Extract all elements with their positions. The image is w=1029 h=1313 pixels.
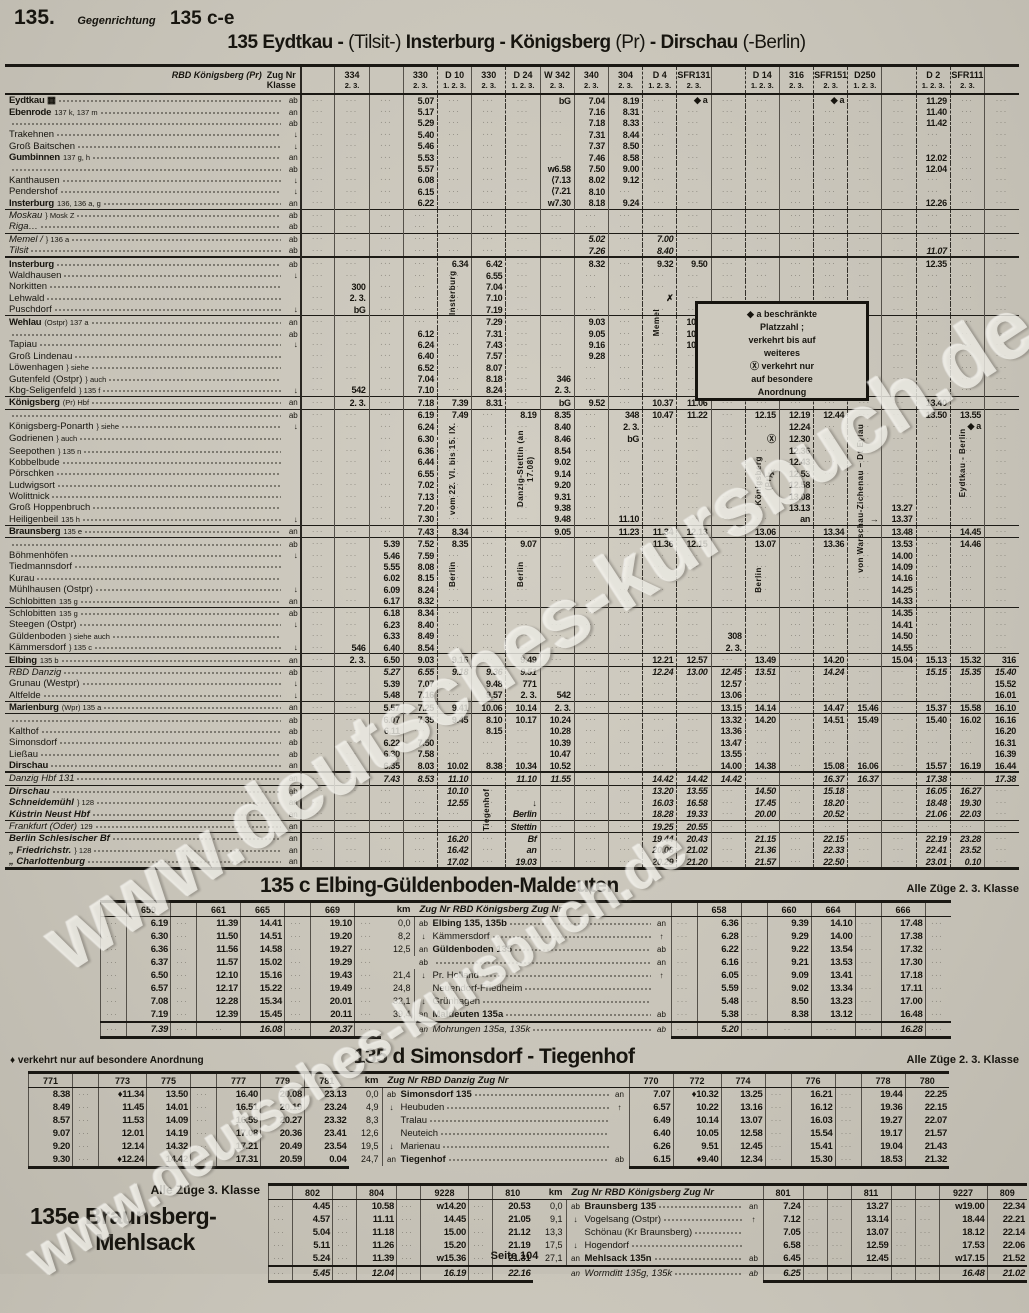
time-cell: 7.13 <box>403 491 437 502</box>
time-cell: 6.42 <box>472 257 506 269</box>
route-title-segment: Insterburg - Königsberg <box>406 32 611 53</box>
time-cell: 15.22 <box>241 982 285 995</box>
branch-time-table: 658660664666···6.36···9.3914.10···17.48·… <box>671 900 952 1039</box>
time-cell: 17.45 <box>745 797 779 808</box>
time-cell: 19.33 <box>677 808 711 820</box>
empty-cell: ··· <box>677 480 711 491</box>
time-cell: 7.04 <box>403 373 437 384</box>
station-name: Grünhagen <box>433 995 481 1008</box>
empty-cell: ··· <box>403 293 437 304</box>
time-cell: 14.00 <box>882 550 916 561</box>
empty-cell: ··· <box>506 642 540 654</box>
station-name: Güldenboden 135 <box>433 943 513 956</box>
empty-cell: ··· <box>916 175 950 186</box>
empty-cell: ··· <box>677 595 711 607</box>
empty-cell: ··· <box>574 584 608 595</box>
ab-an-marker: an <box>415 1023 433 1036</box>
station-name: Schlobitten <box>9 596 56 607</box>
empty-cell: ··· <box>950 106 984 117</box>
empty-cell: ··· <box>472 118 506 129</box>
empty-cell: ··· <box>472 526 506 538</box>
dot-leader <box>11 164 281 172</box>
empty-cell: ··· <box>915 1226 939 1239</box>
branch-row: ···5.04···11.18···15.00···21.12 <box>269 1226 533 1239</box>
time-cell: 7.12 <box>763 1213 803 1226</box>
station-row: Tiedmannsdorf······5.558.08·············… <box>5 561 1019 572</box>
time-cell: 10.14 <box>506 701 540 713</box>
time-cell: 2. 3. <box>711 642 745 654</box>
empty-cell: ··· <box>438 141 472 152</box>
time-cell: 6.37 <box>127 956 171 969</box>
branch-row: ···5.45···12.04···16.19···22.16 <box>269 1266 533 1282</box>
time-cell: 8.15 <box>472 726 506 737</box>
empty-cell: ··· <box>438 245 472 257</box>
empty-cell: ··· <box>643 457 677 468</box>
empty-cell: ··· <box>369 445 403 456</box>
empty-cell: ··· <box>403 820 437 832</box>
empty-cell: ··· <box>711 152 745 163</box>
empty-cell: ··· <box>745 502 779 513</box>
station-note: 136, 136 a, g <box>57 199 101 208</box>
empty-cell: ··· <box>882 270 916 281</box>
section-135e-title: 135e Braunsberg- Mehlsack <box>30 1203 260 1255</box>
train-number-header: 661 <box>197 902 241 917</box>
branch-row: 6.4010.0512.58···15.54···19.1721.57 <box>629 1127 949 1140</box>
empty-cell: ··· <box>985 257 1020 269</box>
empty-cell: ··· <box>335 221 369 233</box>
empty-cell: ··· <box>506 129 540 140</box>
station-note: } Mosk Z <box>45 211 74 220</box>
empty-cell: ··· <box>438 198 472 210</box>
time-cell: ✗ <box>745 468 779 479</box>
time-cell: 9.28 <box>574 351 608 362</box>
empty-cell: ··· <box>741 943 767 956</box>
time-cell: ◆ a <box>950 421 984 432</box>
ab-an-marker: an <box>283 656 300 665</box>
station-cell: Danzig Hbf 131an <box>5 772 301 785</box>
train-number-header: 777 <box>217 1073 261 1088</box>
branch-station-row: 12,6Neuteich <box>349 1127 629 1140</box>
time-cell: 11.34 <box>643 526 677 538</box>
station-cell: „ Friedrichstr.} 128an <box>5 845 301 856</box>
branch-mid-header: kmZug Nr RBD Danzig Zug Nr <box>349 1071 629 1088</box>
empty-cell: ··· <box>438 94 472 106</box>
empty-cell: ··· <box>779 737 813 748</box>
ab-an-marker: an <box>653 917 671 930</box>
empty-cell: ··· <box>950 468 984 479</box>
station-cell: Grunau (Westpr)↓ <box>5 678 301 689</box>
time-cell: 16.03 <box>791 1114 835 1127</box>
empty-cell: ··· <box>882 726 916 737</box>
empty-cell: ··· <box>882 678 916 689</box>
empty-cell: ··· <box>848 468 882 479</box>
time-cell: 12.43 <box>779 457 813 468</box>
empty-cell: ··· <box>779 257 813 269</box>
station-row: Berlin Schlesischer Bfan············16.2… <box>5 833 1019 845</box>
empty-cell: ··· <box>814 631 848 642</box>
empty-cell: ··· <box>335 468 369 479</box>
empty-cell: ··· <box>779 748 813 759</box>
gegenrichtung-label: Gegenrichtung <box>77 15 155 27</box>
empty-cell: ··· <box>848 748 882 759</box>
time-cell: 17.48 <box>881 917 925 931</box>
station-cell: Norkitten <box>5 281 301 292</box>
empty-cell: ··· <box>335 163 369 174</box>
station-row: RBD Danzigab······5.276.559.189.369.51··… <box>5 666 1019 678</box>
empty-cell: ··· <box>916 690 950 702</box>
time-cell: 6.24 <box>403 421 437 432</box>
empty-cell: ··· <box>745 457 779 468</box>
station-name: Tilsit <box>9 245 28 256</box>
empty-cell: ··· <box>301 666 335 678</box>
time-cell: 6.40 <box>403 351 437 362</box>
empty-cell: ··· <box>540 304 574 316</box>
time-cell: 16.03 <box>643 797 677 808</box>
empty-cell: ··· <box>101 943 127 956</box>
time-cell: 8.31 <box>608 106 642 117</box>
time-cell: 16.39 <box>985 748 1020 759</box>
time-cell: 11.10 <box>506 772 540 785</box>
time-cell: 6.33 <box>369 631 403 642</box>
empty-cell: ··· <box>985 584 1020 595</box>
station-row: Güldenboden} siehe auch······6.338.49···… <box>5 631 1019 642</box>
station-cell: Riga…ab <box>5 221 301 233</box>
empty-cell: ··· <box>540 233 574 245</box>
time-cell: 8.38 <box>767 1008 811 1022</box>
empty-cell: ··· <box>438 445 472 456</box>
empty-cell: ··· <box>985 328 1020 339</box>
train-column-header: SFR1112. 3. <box>950 66 984 95</box>
empty-cell: ··· <box>301 468 335 479</box>
time-cell: 17.11 <box>881 982 925 995</box>
station-name: Lehwald <box>9 293 44 304</box>
dot-leader <box>93 845 280 853</box>
empty-cell: ··· <box>301 257 335 269</box>
station-name: Güldenboden <box>9 631 66 642</box>
time-cell: 6.07 <box>369 714 403 726</box>
empty-cell: ··· <box>891 1266 915 1282</box>
empty-cell: ··· <box>711 808 745 820</box>
train-number-header: 770 <box>629 1073 673 1088</box>
empty-cell: ··· <box>369 152 403 163</box>
empty-cell: ··· <box>301 820 335 832</box>
time-cell: 5.53 <box>403 152 437 163</box>
empty-cell: ··· <box>677 760 711 772</box>
empty-cell: ··· <box>369 304 403 316</box>
time-cell: 14.38 <box>745 760 779 772</box>
empty-cell: ··· <box>848 480 882 491</box>
empty-cell: ··· <box>916 607 950 619</box>
empty-cell: ··· <box>711 409 745 421</box>
empty-cell: ··· <box>677 233 711 245</box>
empty-cell: ··· <box>916 281 950 292</box>
dot-leader <box>36 573 280 581</box>
time-cell: ♦11.34 <box>99 1088 147 1102</box>
empty-cell: ··· <box>608 785 642 797</box>
empty-cell: ··· <box>741 1022 767 1038</box>
empty-cell: ··· <box>814 270 848 281</box>
empty-cell: ··· <box>814 163 848 174</box>
empty-cell: ··· <box>711 820 745 832</box>
empty-cell: ··· <box>985 808 1020 820</box>
empty-cell: ··· <box>711 198 745 210</box>
time-cell: 7.19 <box>127 1008 171 1022</box>
empty-cell: ··· <box>925 1022 951 1038</box>
empty-cell: ··· <box>848 607 882 619</box>
empty-cell: ··· <box>574 526 608 538</box>
time-cell: 8.35 <box>438 538 472 550</box>
time-cell: 14.41 <box>882 619 916 630</box>
empty-cell: ··· <box>506 619 540 630</box>
empty-cell: ··· <box>925 1008 951 1022</box>
branch-station-row: aban <box>381 956 671 969</box>
time-cell: 12.26 <box>916 198 950 210</box>
station-name: Königsberg <box>9 397 60 408</box>
empty-cell: ··· <box>814 690 848 702</box>
empty-cell: ··· <box>827 1226 851 1239</box>
time-cell: 9.09 <box>767 969 811 982</box>
station-cell: Küstrin Neust Hbfan <box>5 808 301 820</box>
time-cell: 21.36 <box>745 845 779 856</box>
empty-cell: ··· <box>540 257 574 269</box>
empty-cell: ··· <box>438 163 472 174</box>
empty-cell: ··· <box>335 198 369 210</box>
train-number-header <box>765 1073 791 1088</box>
station-name: Godrienen <box>9 433 53 444</box>
time-cell: 14.14 <box>745 701 779 713</box>
station-note: 135 g <box>59 609 78 618</box>
station-name: Ließau <box>9 749 38 760</box>
empty-cell: ··· <box>814 257 848 269</box>
empty-cell: ··· <box>574 690 608 702</box>
empty-cell: ··· <box>677 726 711 737</box>
empty-cell: ··· <box>369 106 403 117</box>
km-value: 13,3 <box>533 1226 567 1239</box>
time-cell: 7.02 <box>403 480 437 491</box>
time-cell: 14.25 <box>882 584 916 595</box>
empty-cell: ··· <box>403 808 437 820</box>
time-cell: 20.37 <box>311 1022 355 1038</box>
station-name: Trakehnen <box>9 129 54 140</box>
empty-cell: ··· <box>608 209 642 221</box>
empty-cell: ··· <box>779 561 813 572</box>
empty-cell: ··· <box>711 502 745 513</box>
empty-cell: ··· <box>711 445 745 456</box>
dot-leader <box>83 446 280 454</box>
empty-cell: ··· <box>540 152 574 163</box>
empty-cell: ··· <box>608 820 642 832</box>
time-cell: 16.21 <box>791 1088 835 1102</box>
empty-cell: ··· <box>950 198 984 210</box>
time-cell: 8.10 <box>574 186 608 197</box>
empty-cell: ··· <box>985 607 1020 619</box>
time-cell: 15.04 <box>882 654 916 666</box>
empty-cell: ··· <box>882 690 916 702</box>
empty-cell: ··· <box>574 701 608 713</box>
empty-cell: ··· <box>985 561 1020 572</box>
empty-cell: ··· <box>814 820 848 832</box>
time-cell: 8.40 <box>643 245 677 257</box>
empty-cell: ··· <box>950 584 984 595</box>
empty-cell: ··· <box>369 468 403 479</box>
empty-cell: ··· <box>506 550 540 561</box>
empty-cell: ··· <box>925 930 951 943</box>
empty-cell: ··· <box>574 373 608 384</box>
empty-cell: ··· <box>73 1114 99 1127</box>
empty-cell: ··· <box>745 445 779 456</box>
empty-cell: ··· <box>608 666 642 678</box>
empty-cell: ··· <box>540 856 574 869</box>
empty-cell: ··· <box>472 245 506 257</box>
empty-cell: ··· <box>848 209 882 221</box>
empty-cell: ··· <box>779 833 813 845</box>
empty-cell: ··· <box>335 445 369 456</box>
empty-cell: ··· <box>335 351 369 362</box>
time-cell: 13.55 <box>950 409 984 421</box>
station-name: Schlobitten <box>9 608 56 619</box>
empty-cell: ··· <box>677 550 711 561</box>
station-row: Norkitten···300·········7.04············… <box>5 281 1019 292</box>
empty-cell: ··· <box>301 502 335 513</box>
empty-cell: ··· <box>643 607 677 619</box>
empty-cell: ··· <box>882 362 916 373</box>
branch-time-table: 659661665669···6.19···11.3914.41···19.10… <box>100 900 381 1039</box>
empty-cell: ··· <box>643 468 677 479</box>
empty-cell: ··· <box>472 856 506 869</box>
ab-an-marker: ab <box>283 727 300 736</box>
empty-cell: ··· <box>985 619 1020 630</box>
empty-cell: ··· <box>745 748 779 759</box>
empty-cell: ··· <box>506 257 540 269</box>
time-cell: 19.43 <box>311 969 355 982</box>
table-135c: 659661665669···6.19···11.3914.41···19.10… <box>100 900 1029 1039</box>
empty-cell: ··· <box>985 631 1020 642</box>
station-cell: Groß Hoppenbruch <box>5 502 301 513</box>
empty-cell: ··· <box>403 233 437 245</box>
branch-station-row: anMohrungen 135a, 135kab <box>381 1021 671 1036</box>
empty-cell: ··· <box>745 221 779 233</box>
empty-cell: ··· <box>950 304 984 316</box>
dot-leader <box>61 655 281 663</box>
empty-cell: ··· <box>711 129 745 140</box>
time-cell: 11.18 <box>357 1226 397 1239</box>
station-name: Ebenrode <box>9 107 51 118</box>
time-cell: 8.15 <box>403 573 437 584</box>
empty-cell: ··· <box>814 619 848 630</box>
empty-cell: ··· <box>403 845 437 856</box>
empty-cell: ··· <box>882 351 916 362</box>
empty-cell: ··· <box>540 785 574 797</box>
time-cell: 13.16 <box>721 1101 765 1114</box>
station-row: Insterburgab············6.346.42······8.… <box>5 257 1019 269</box>
time-cell: 6.11 <box>369 726 403 737</box>
empty-cell: ··· <box>608 584 642 595</box>
station-row: Mühlhausen (Ostpr)↓······6.098.24·······… <box>5 584 1019 595</box>
empty-cell: ··· <box>301 281 335 292</box>
dot-leader <box>92 809 281 817</box>
empty-cell: ··· <box>506 502 540 513</box>
empty-cell: ··· <box>779 595 813 607</box>
time-cell: 9.02 <box>767 982 811 995</box>
time-cell: 5.20 <box>697 1022 741 1038</box>
time-cell: 8.40 <box>540 421 574 432</box>
time-cell: 22.41 <box>916 845 950 856</box>
empty-cell: ··· <box>438 678 472 689</box>
empty-cell: ··· <box>848 526 882 538</box>
km-value: 4,9 <box>349 1101 383 1114</box>
time-cell: 19.10 <box>311 917 355 931</box>
empty-cell: ··· <box>711 245 745 257</box>
empty-cell: ··· <box>301 163 335 174</box>
time-cell: 9.39 <box>767 917 811 931</box>
ab-an-marker: ab <box>415 917 433 930</box>
empty-cell: ··· <box>848 856 882 869</box>
empty-cell: ··· <box>285 969 311 982</box>
empty-cell: ··· <box>677 281 711 292</box>
time-cell: 6.30 <box>403 432 437 445</box>
station-name: Tapiau <box>9 339 37 350</box>
time-cell: 14.00 <box>811 930 855 943</box>
time-cell: 10.14 <box>673 1114 721 1127</box>
empty-cell: ··· <box>608 281 642 292</box>
empty-cell: ··· <box>355 943 381 956</box>
empty-cell: ··· <box>540 654 574 666</box>
empty-cell: ··· <box>925 943 951 956</box>
ab-an-marker: an <box>283 774 300 783</box>
time-cell: 6.17 <box>369 595 403 607</box>
branch-mid-header: kmZug Nr RBD Königsberg Zug Nr <box>533 1183 763 1200</box>
station-cell: Wehlau(Ostpr) 137 aan <box>5 316 301 328</box>
empty-cell: ··· <box>403 316 437 328</box>
station-note: (Ostpr) 137 a <box>44 318 88 327</box>
time-cell: 16.19 <box>421 1266 469 1282</box>
empty-cell: ··· <box>925 969 951 982</box>
empty-cell: ··· <box>608 714 642 726</box>
empty-cell: ··· <box>677 141 711 152</box>
empty-cell: ··· <box>745 595 779 607</box>
time-cell: 346 <box>540 373 574 384</box>
time-cell: 12.45 <box>711 666 745 678</box>
time-cell: 14.45 <box>950 526 984 538</box>
empty-cell: ··· <box>779 820 813 832</box>
time-cell: 16.51 <box>217 1101 261 1114</box>
time-cell: 20.00 <box>745 808 779 820</box>
empty-cell: ··· <box>608 304 642 316</box>
ab-an-marker: ab <box>653 1008 671 1021</box>
station-cell: Tiedmannsdorf <box>5 561 301 572</box>
section-135e-klasse: Alle Züge 3. Klasse <box>30 1183 260 1197</box>
empty-cell: ··· <box>848 129 882 140</box>
empty-cell: ··· <box>369 351 403 362</box>
empty-cell: ··· <box>985 118 1020 129</box>
time-cell: 0.04 <box>305 1153 349 1168</box>
empty-cell: ··· <box>472 468 506 479</box>
empty-cell: ··· <box>643 152 677 163</box>
empty-cell: ··· <box>355 917 381 931</box>
time-cell: 18.28 <box>643 808 677 820</box>
empty-cell: ··· <box>438 584 472 595</box>
empty-cell: ··· <box>301 538 335 550</box>
time-cell: 11.53 <box>99 1114 147 1127</box>
time-cell: 15.16 <box>241 969 285 982</box>
empty-cell: ··· <box>643 690 677 702</box>
empty-cell: ··· <box>814 607 848 619</box>
station-name: Vogelsang (Ostpr) <box>585 1213 662 1226</box>
empty-cell: ··· <box>848 502 882 513</box>
empty-cell: ··· <box>608 385 642 397</box>
time-cell: 6.36 <box>127 943 171 956</box>
time-cell: 14.32 <box>147 1140 191 1153</box>
